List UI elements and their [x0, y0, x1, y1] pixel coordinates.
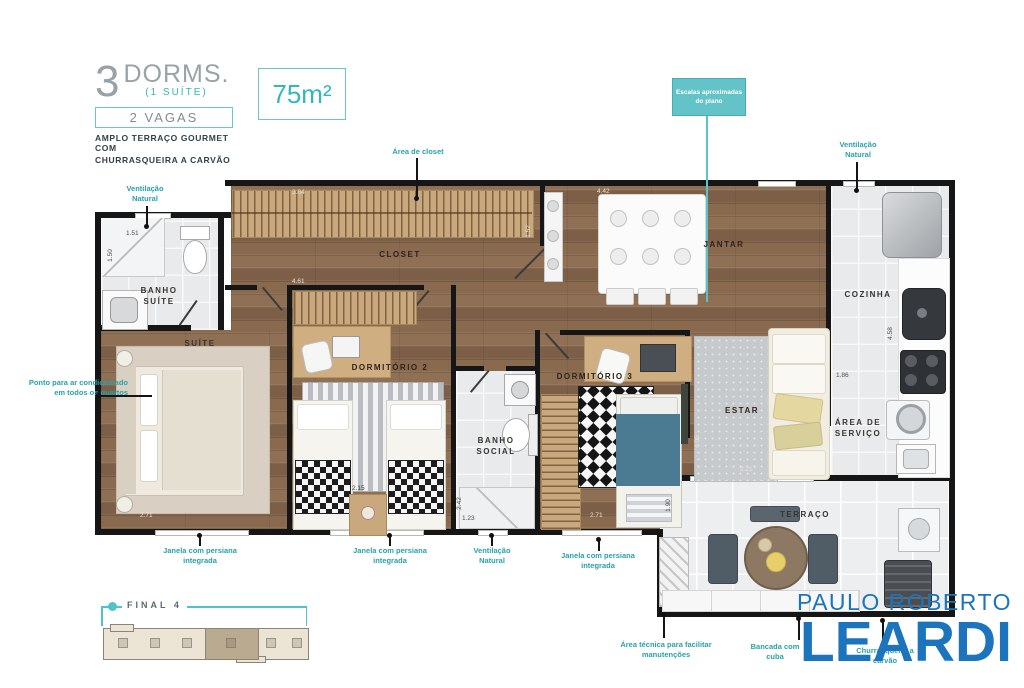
washer-door: [896, 404, 926, 434]
vagas-badge: 2 VAGAS: [95, 107, 233, 128]
dimension: 2.42: [456, 497, 463, 510]
pointer-dot: [387, 533, 392, 538]
subtitle-line1: AMPLO TERRAÇO GOURMET COM: [95, 133, 245, 153]
dimension: 4.05: [694, 435, 701, 448]
room-label-dorm3: DORMITÓRIO 3: [540, 372, 650, 383]
floorplan-page: 3 DORMS. (1 SUÍTE) 2 VAGAS AMPLO TERRAÇO…: [0, 0, 1024, 688]
dimension: 1.90: [665, 499, 672, 512]
logo-line2: LEARDI: [730, 616, 1012, 668]
dorms-count: 3: [95, 62, 119, 102]
computer-monitor: [640, 344, 676, 372]
dorm3-wardrobe: [541, 394, 581, 530]
pointer-dot: [144, 224, 149, 229]
annotation-window-2: Janela com persiana integrada: [348, 546, 432, 566]
decor: [547, 258, 559, 270]
keyplan-unit-mark: [266, 638, 276, 648]
sink-basin: [908, 518, 930, 540]
pointer-line: [100, 395, 152, 397]
room-label-banho-suite: BANHO SUÍTE: [124, 286, 194, 308]
keyplan-unit-mark: [182, 638, 192, 648]
keyplan-unit-mark: [226, 638, 236, 648]
plate: [610, 210, 627, 227]
keyplan-bracket: [101, 606, 103, 626]
pointer-dot: [489, 533, 494, 538]
shower: [459, 487, 535, 529]
room-label-terraco: TERRAÇO: [770, 510, 840, 521]
annotation-ventilation-3: Ventilação Natural: [460, 546, 524, 566]
wall: [292, 285, 424, 290]
sofa-cushion: [772, 334, 826, 364]
sink-basin: [511, 381, 529, 399]
wall: [560, 330, 690, 335]
pointer-dot: [854, 188, 859, 193]
burner: [926, 374, 938, 386]
chair: [670, 288, 698, 305]
sink-drain: [917, 308, 927, 318]
window: [758, 181, 796, 187]
keyplan-dot-icon: [108, 602, 117, 611]
plate: [674, 210, 691, 227]
room-label-closet: CLOSET: [360, 250, 440, 261]
nightstand-lamp: [361, 506, 375, 520]
dining-table: [598, 194, 706, 294]
pointer-dot: [661, 612, 666, 617]
decor: [547, 230, 559, 242]
annotation-ventilation-1: Ventilação Natural: [113, 184, 177, 204]
plate: [766, 552, 786, 572]
decor: [547, 200, 559, 212]
annotation-technical-area: Área técnica para facilitar manutenções: [610, 640, 722, 660]
blanket-pattern: [388, 460, 444, 514]
callout-text: Escalas aproximadas do plano: [673, 86, 745, 108]
keyplan-unit-mark: [292, 638, 302, 648]
pointer-dot: [414, 196, 419, 201]
bed-blanket: [162, 370, 241, 490]
dimension: 1.51: [126, 230, 139, 237]
area-badge: 75m²: [258, 68, 346, 120]
dimension: 1.86: [836, 372, 849, 379]
window: [562, 530, 642, 536]
burner: [905, 374, 917, 386]
desk-chair: [300, 339, 334, 374]
callout-pointer-line: [706, 114, 708, 302]
room-label-suite: SUÍTE: [170, 339, 230, 350]
room-label-estar: ESTAR: [712, 406, 772, 417]
dorm2-wardrobe: [293, 291, 417, 325]
dimension: 4.61: [292, 278, 305, 285]
chair: [638, 288, 666, 305]
wall: [95, 212, 101, 535]
tank-basin: [903, 449, 929, 469]
dimension: 2.15: [352, 485, 365, 492]
throw-pillow: [773, 422, 823, 451]
blanket-pattern: [295, 460, 351, 514]
keyplan-building-notch: [110, 624, 134, 632]
pointer-dot: [96, 393, 101, 398]
shower: [102, 218, 165, 277]
burner: [926, 355, 938, 367]
burner: [905, 355, 917, 367]
closet-shelf-line: [232, 212, 532, 214]
annotation-window-1: Janela com persiana integrada: [158, 546, 242, 566]
pointer-dot: [596, 537, 601, 542]
keyplan-unit-mark: [150, 638, 160, 648]
wall: [456, 366, 484, 371]
pointer-line: [416, 158, 418, 198]
pointer-line: [856, 162, 858, 190]
dimension: 1.50: [107, 249, 114, 262]
tv-panel: [681, 384, 688, 444]
sofa-cushion: [772, 364, 826, 394]
plate: [674, 248, 691, 265]
toilet: [183, 240, 207, 274]
callout-box: Escalas aproximadas do plano: [672, 78, 746, 116]
dimension: 4.58: [887, 327, 894, 340]
pointer-line: [663, 616, 665, 638]
laptop: [332, 336, 360, 358]
keyplan-label: FINAL 4: [122, 600, 187, 610]
annotation-ventilation-2: Ventilação Natural: [826, 140, 890, 160]
window: [843, 181, 875, 187]
chair: [606, 288, 634, 305]
fridge: [882, 192, 942, 258]
chair: [808, 534, 838, 584]
dimension: 1.52: [525, 225, 532, 238]
wall: [287, 285, 292, 535]
wall: [218, 212, 224, 330]
room-label-cozinha: COZINHA: [838, 290, 898, 301]
toilet-tank: [180, 226, 210, 240]
annotation-window-3: Janela com persiana integrada: [556, 551, 640, 571]
dorms-label: DORMS.: [123, 62, 229, 87]
dimension: 4.42: [597, 188, 610, 195]
suite-label: (1 SUÍTE): [123, 87, 229, 98]
room-label-jantar: JANTAR: [692, 240, 756, 251]
sofa-cushion: [772, 450, 826, 476]
dimension: 3.84: [292, 189, 305, 196]
room-label-banho-social: BANHO SOCIAL: [467, 436, 525, 458]
dimension: 2.21: [740, 466, 753, 473]
dimension: 2.71: [140, 512, 153, 519]
pillow: [140, 430, 158, 482]
window: [155, 530, 249, 536]
nightstand-lamp: [116, 496, 133, 513]
room-label-area-servico: ÁREA DE SERVIÇO: [833, 418, 883, 440]
chair: [708, 534, 738, 584]
dimension: 1.23: [462, 515, 475, 522]
wall: [225, 285, 257, 290]
pointer-line: [146, 206, 148, 226]
keyplan-bracket: [306, 606, 308, 626]
nightstand-lamp: [116, 350, 133, 367]
keyplan-unit-mark: [118, 638, 128, 648]
annotation-closet-area: Área de closet: [376, 147, 460, 157]
pillow: [390, 404, 442, 430]
pillow: [140, 374, 158, 426]
dimension: 2.71: [590, 512, 603, 519]
bowl: [758, 538, 772, 552]
closet-wardrobe: [232, 190, 534, 238]
room-label-dorm2: DORMITÓRIO 2: [330, 363, 450, 374]
header: 3 DORMS. (1 SUÍTE) 2 VAGAS AMPLO TERRAÇO…: [95, 62, 245, 165]
blanket-blue: [616, 414, 680, 486]
plate: [642, 248, 659, 265]
plate: [610, 248, 627, 265]
brand-logo: PAULO ROBERTO LEARDI: [730, 589, 1012, 668]
subtitle-line2: CHURRASQUEIRA A CARVÃO: [95, 155, 245, 165]
pointer-dot: [197, 533, 202, 538]
plate: [642, 210, 659, 227]
pillow: [297, 404, 349, 430]
